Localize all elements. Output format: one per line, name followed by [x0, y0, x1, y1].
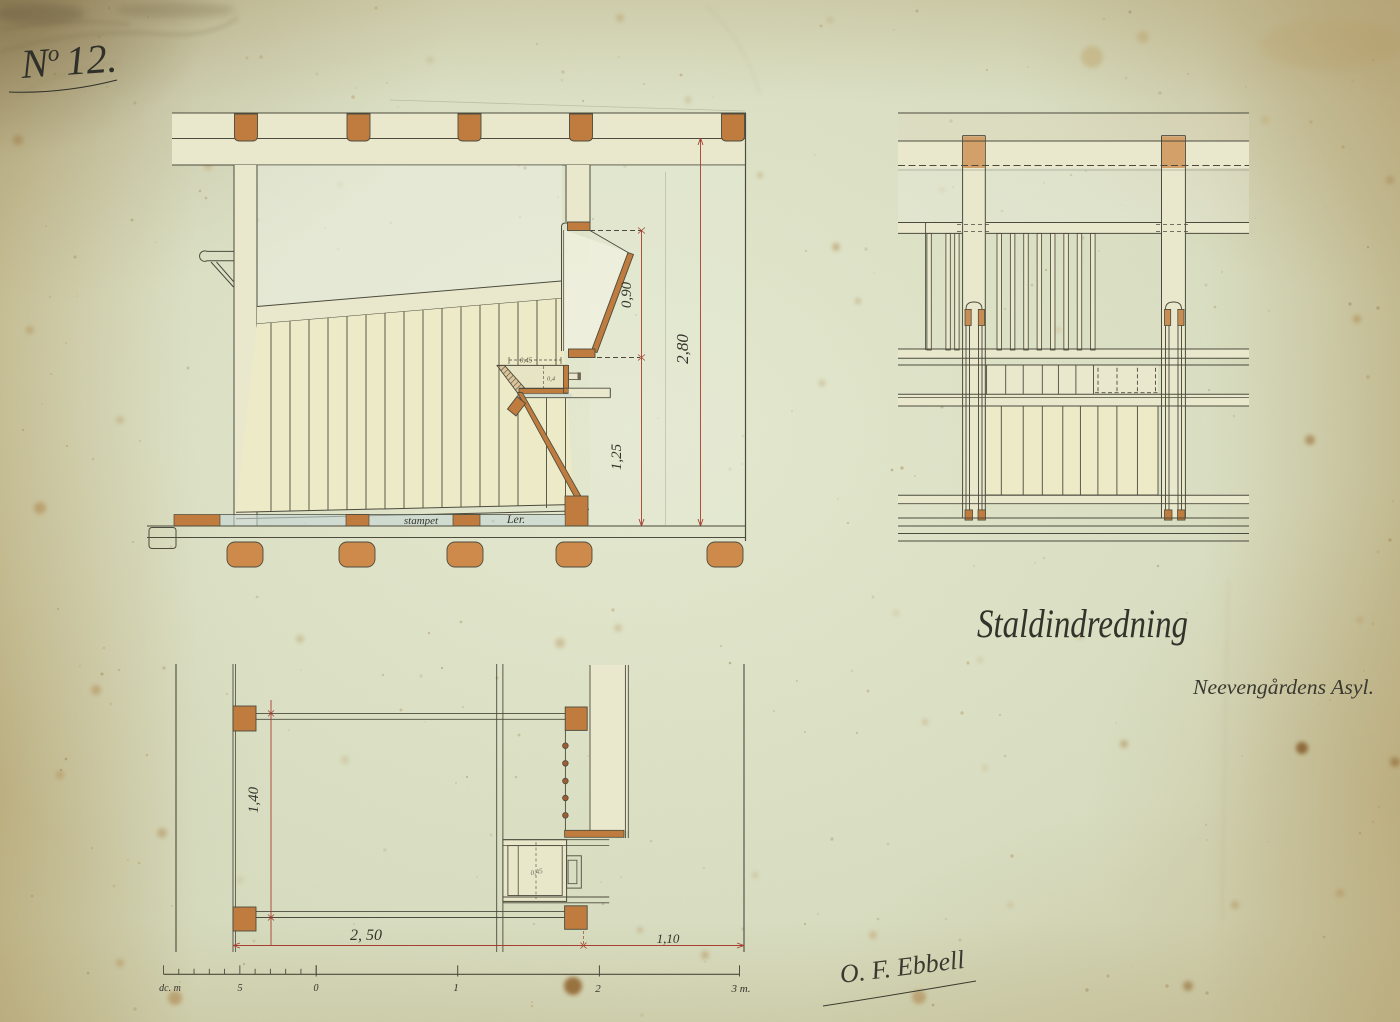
svg-text:0,90: 0,90 [619, 281, 635, 308]
svg-text:No12.: No12. [18, 34, 118, 87]
svg-text:0: 0 [314, 983, 319, 994]
svg-text:2, 50: 2, 50 [350, 927, 382, 944]
svg-text:1,40: 1,40 [246, 786, 262, 813]
svg-text:1: 1 [453, 982, 459, 994]
svg-text:stampet: stampet [404, 515, 439, 527]
svg-text:dc. m: dc. m [159, 983, 181, 994]
svg-text:2: 2 [595, 983, 601, 995]
svg-text:2,80: 2,80 [673, 334, 692, 364]
svg-text:Neevengårdens Asyl.: Neevengårdens Asyl. [1192, 675, 1374, 699]
svg-text:Staldindredning: Staldindredning [977, 601, 1188, 646]
svg-text:0,4: 0,4 [547, 376, 556, 383]
svg-text:5: 5 [238, 983, 243, 994]
svg-text:1,25: 1,25 [609, 443, 625, 470]
svg-text:Ler.: Ler. [506, 512, 525, 526]
svg-text:0,45: 0,45 [520, 357, 533, 365]
svg-text:3 m.: 3 m. [731, 983, 751, 995]
svg-text:1,10: 1,10 [657, 931, 680, 946]
